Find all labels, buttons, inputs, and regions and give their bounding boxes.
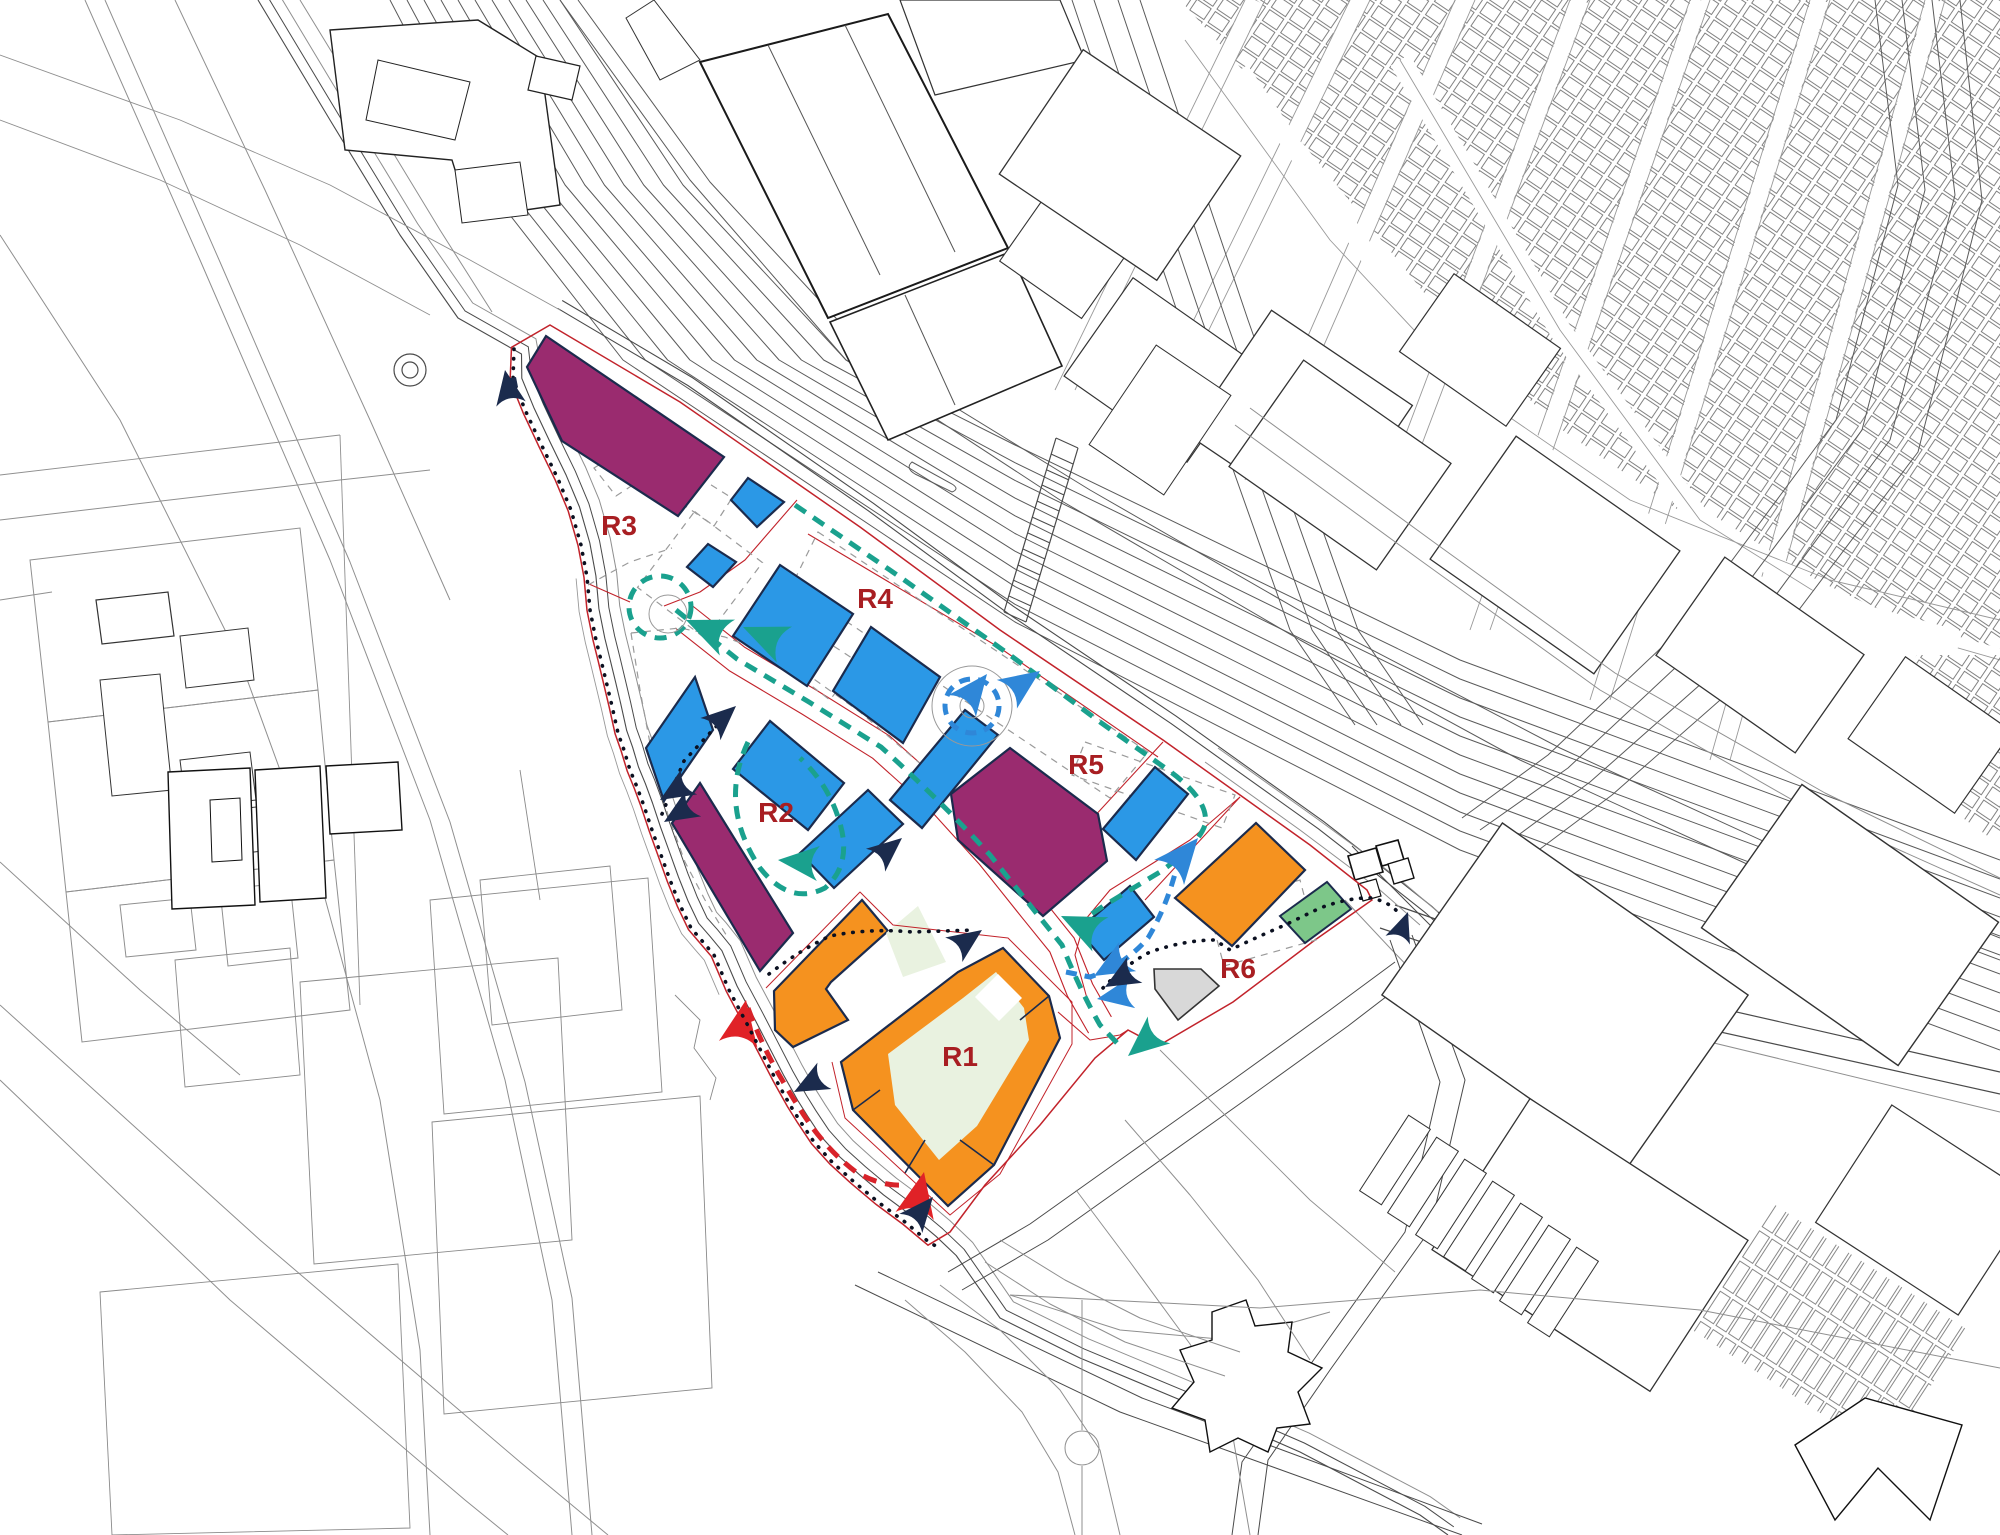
svg-text:R2: R2 (758, 797, 794, 828)
svg-text:R6: R6 (1220, 953, 1256, 984)
svg-text:R4: R4 (857, 583, 893, 614)
svg-text:R1: R1 (942, 1041, 978, 1072)
svg-text:R3: R3 (601, 510, 637, 541)
svg-text:R5: R5 (1068, 749, 1104, 780)
